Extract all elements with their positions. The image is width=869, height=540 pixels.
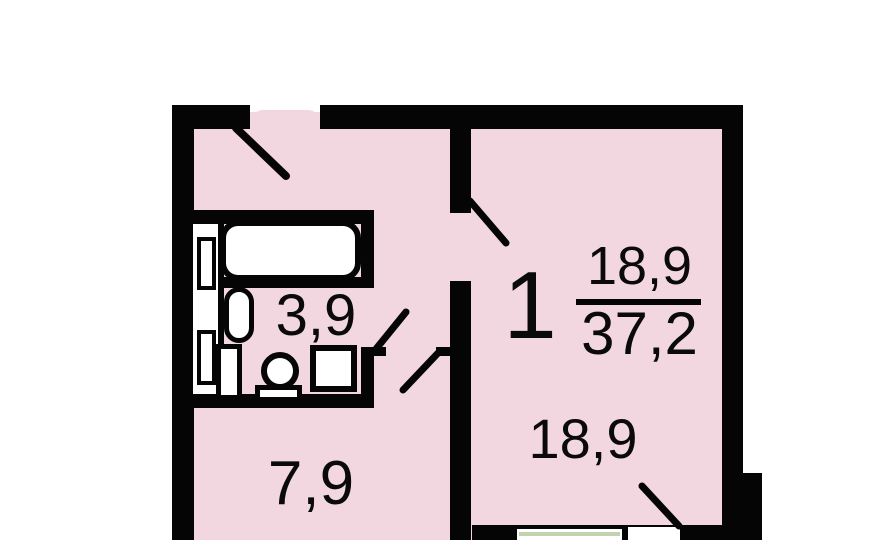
living-area-numerator: 18,9 (577, 240, 702, 292)
shaft-riser-lower (197, 330, 216, 385)
floorplan: 3,9 7,9 18,9 1 18,9 37,2 (0, 0, 869, 540)
balcony-doorway (628, 527, 680, 540)
sink-pedestal (255, 385, 302, 402)
toilet (224, 287, 254, 343)
kitchen-area-label: 7,9 (261, 455, 361, 513)
bathtub (220, 220, 361, 281)
wall-middle-upper (450, 127, 471, 213)
wall-top-main (320, 105, 743, 129)
wall-middle-lower (450, 281, 471, 540)
kitchen-door-jamb (436, 347, 450, 356)
washing-machine (310, 345, 357, 392)
wall-left (172, 105, 194, 540)
bathroom-cabinet (216, 344, 242, 400)
bathroom-door-jamb (361, 347, 386, 356)
shaft-riser-upper (197, 237, 216, 290)
bathroom-wall-right-upper (361, 224, 374, 285)
entrance-doorway (251, 110, 320, 134)
window-glass-line (519, 532, 620, 536)
room-count-label: 1 (504, 262, 556, 350)
wall-right-upper (722, 105, 743, 473)
window (517, 529, 622, 540)
total-area-denominator: 37,2 (577, 306, 702, 362)
bathroom-area-label: 3,9 (266, 288, 366, 344)
living-room-area-label: 18,9 (528, 412, 638, 466)
